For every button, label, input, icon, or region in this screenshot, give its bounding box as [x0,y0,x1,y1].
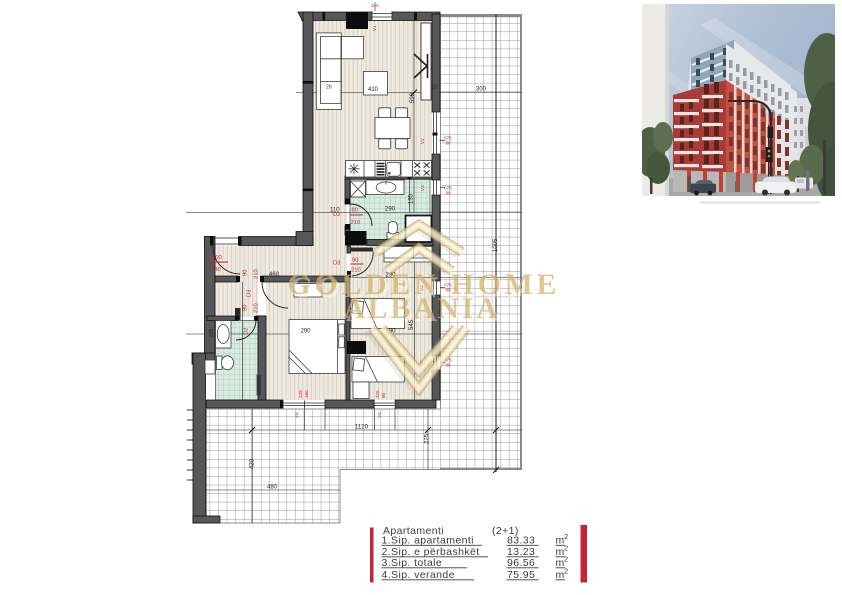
svg-text:75.95: 75.95 [507,569,535,581]
svg-text:2: 2 [564,555,569,564]
svg-text:225: 225 [375,390,380,398]
svg-text:1120: 1120 [355,425,369,431]
svg-text:80: 80 [446,363,452,368]
svg-text:D3: D3 [247,290,253,297]
svg-text:2: 2 [564,532,569,541]
svg-text:225: 225 [298,390,303,398]
svg-text:90: 90 [243,270,249,276]
svg-text:290: 290 [301,329,312,335]
svg-text:D3: D3 [333,261,340,267]
svg-text:230: 230 [211,267,221,273]
svg-text:83.33: 83.33 [507,535,535,547]
svg-text:100: 100 [212,255,222,261]
svg-text:80: 80 [446,191,452,196]
svg-text:290: 290 [385,207,396,213]
svg-text:90: 90 [243,305,249,311]
svg-text:V2: V2 [420,138,425,144]
svg-text:80: 80 [352,208,358,214]
svg-text:3.Sip. totale: 3.Sip. totale [382,557,443,569]
svg-text:90: 90 [352,258,358,264]
svg-text:D2: D2 [333,212,340,218]
svg-text:1005: 1005 [493,238,499,252]
svg-text:4.Sip. verande: 4.Sip. verande [382,569,455,581]
svg-text:80: 80 [381,392,386,398]
svg-text:V1: V1 [372,25,377,31]
svg-text:480: 480 [267,485,278,491]
svg-text:210: 210 [254,303,260,313]
svg-text:80: 80 [446,141,452,146]
svg-text:590: 590 [410,92,416,103]
svg-text:96.56: 96.56 [507,557,535,569]
svg-text:420: 420 [250,458,256,469]
svg-text:V3: V3 [420,185,425,191]
svg-text:460: 460 [269,272,280,278]
svg-text:1.Sip. apartamenti: 1.Sip. apartamenti [382,535,474,547]
svg-text:160: 160 [304,390,309,398]
svg-text:205: 205 [209,328,215,337]
svg-text:135: 135 [409,193,415,204]
svg-text:240: 240 [371,3,379,8]
svg-text:V4: V4 [377,412,382,418]
svg-text:300: 300 [476,87,487,93]
svg-text:410: 410 [368,87,379,93]
svg-text:ALBANIA: ALBANIA [343,293,500,325]
svg-text:225: 225 [425,433,431,444]
svg-text:20: 20 [432,85,438,91]
svg-text:210: 210 [351,220,361,226]
svg-text:20: 20 [326,85,332,91]
svg-text:D2: D2 [244,328,250,335]
svg-text:V4: V4 [295,412,300,418]
svg-text:210: 210 [254,269,260,279]
